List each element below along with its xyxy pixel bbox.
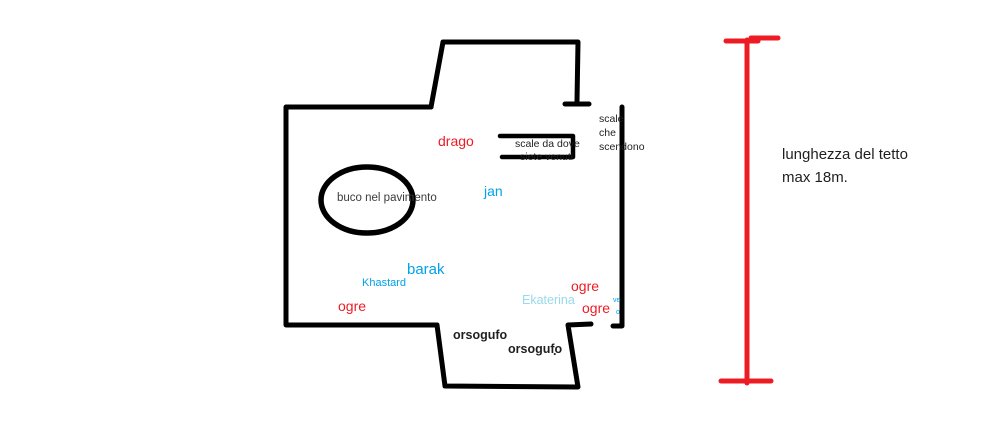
- label-khastard: Khastard: [362, 277, 406, 289]
- label-stairs-down-line2: che: [599, 128, 616, 140]
- label-tiny-note-line1: ve: [613, 297, 620, 305]
- label-stray-dot: .: [553, 345, 556, 359]
- label-ogre-bottom-right: ogre: [582, 301, 610, 316]
- label-barak: barak: [407, 262, 445, 279]
- floor-plan-drawing: [0, 0, 1000, 433]
- label-roof-length-line2: max 18m.: [782, 170, 848, 187]
- label-ogre-top-right: ogre: [571, 279, 599, 294]
- label-stairs-down-line3: scendono: [599, 142, 645, 154]
- room-main-walls: [286, 107, 437, 325]
- label-floor-hole: buco nel pavimento: [337, 192, 437, 205]
- room-right-wall: [613, 107, 622, 326]
- room-top-alcove: [431, 42, 578, 107]
- label-ekaterina: Ekaterina: [522, 294, 575, 308]
- label-orsogufo-1: orsogufo: [453, 329, 507, 343]
- label-jan: jan: [484, 184, 503, 199]
- label-roof-length-line1: lunghezza del tetto: [782, 147, 908, 164]
- label-ogre-left: ogre: [338, 299, 366, 314]
- label-entry-stairs-line2: siete venuti: [520, 152, 573, 164]
- label-stairs-down-line1: scale: [599, 114, 624, 126]
- label-entry-stairs-line1: scale da dove: [515, 139, 580, 151]
- label-tiny-note-line2: o: [616, 309, 620, 317]
- label-drago: drago: [438, 134, 474, 149]
- paint-canvas: drago scale da dove siete venuti scale c…: [0, 0, 1000, 433]
